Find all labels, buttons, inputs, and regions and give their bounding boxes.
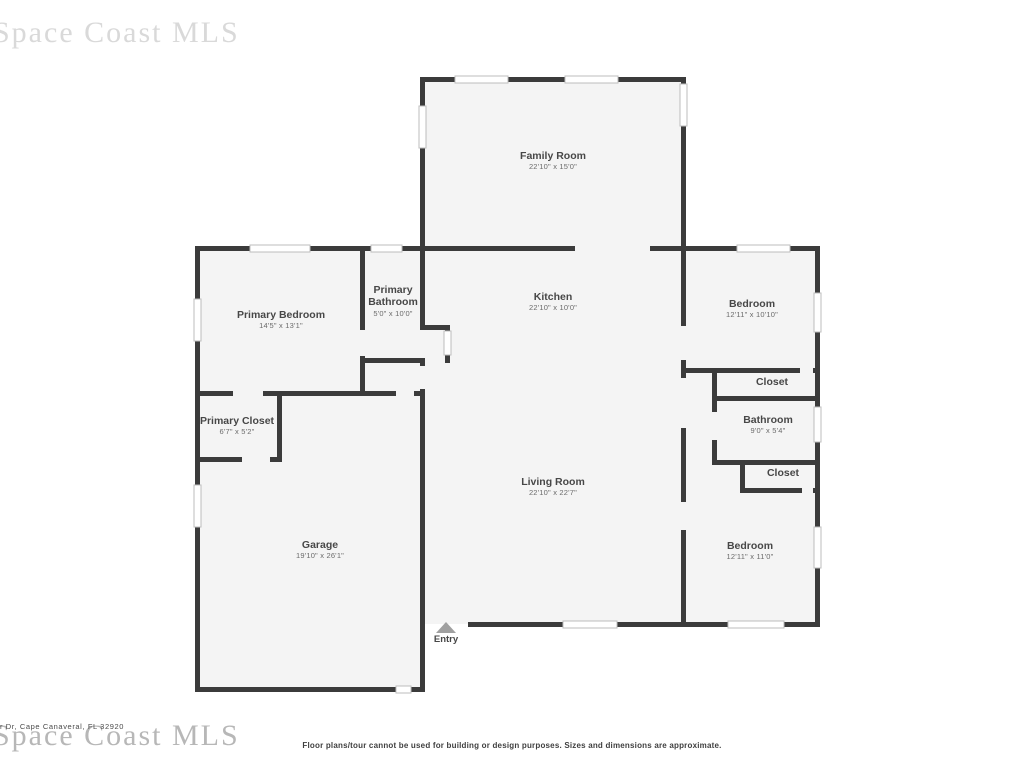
room-label-primary-bathroom: Primary Bathroom 5'0" x 10'0": [360, 284, 426, 319]
room-name: Primary Closet: [200, 415, 274, 427]
room-dims: 5'0" x 10'0": [360, 309, 426, 319]
room-label-kitchen: Kitchen 22'10" x 10'0": [529, 291, 577, 313]
entry-label: Entry: [434, 634, 458, 645]
room-label-closet-2: Closet: [767, 467, 799, 479]
room-name: Family Room: [520, 150, 586, 162]
property-address: r Dr, Cape Canaveral, FL 32920: [0, 722, 124, 731]
room-dims: 12'11" x 11'0": [727, 552, 774, 562]
room-dims: 22'10" x 15'0": [520, 162, 586, 172]
room-dims: 6'7" x 5'2": [200, 427, 274, 437]
room-label-bedroom-1: Bedroom 12'11" x 10'10": [726, 298, 778, 320]
room-label-closet-1: Closet: [756, 376, 788, 388]
room-dims: 12'11" x 10'10": [726, 310, 778, 320]
room-name: Garage: [296, 539, 344, 551]
room-name: Primary Bathroom: [360, 284, 426, 309]
room-dims: 22'10" x 22'7": [521, 488, 585, 498]
floor-plan-page: Space Coast MLS: [0, 0, 1024, 768]
room-name: Bedroom: [726, 298, 778, 310]
room-name: Primary Bedroom: [237, 309, 325, 321]
room-dims: 14'5" x 13'1": [237, 321, 325, 331]
room-name: Closet: [767, 467, 799, 479]
room-name: Living Room: [521, 476, 585, 488]
room-label-garage: Garage 19'10" x 26'1": [296, 539, 344, 561]
room-name: Kitchen: [529, 291, 577, 303]
room-label-primary-bedroom: Primary Bedroom 14'5" x 13'1": [237, 309, 325, 331]
room-dims: 19'10" x 26'1": [296, 551, 344, 561]
room-name: Bedroom: [727, 540, 774, 552]
room-label-primary-closet: Primary Closet 6'7" x 5'2": [200, 415, 274, 437]
room-label-bathroom: Bathroom 9'0" x 5'4": [743, 414, 793, 436]
room-label-family-room: Family Room 22'10" x 15'0": [520, 150, 586, 172]
disclaimer-text: Floor plans/tour cannot be used for buil…: [0, 741, 1024, 750]
room-dims: 22'10" x 10'0": [529, 303, 577, 313]
room-dims: 9'0" x 5'4": [743, 426, 793, 436]
room-label-living-room: Living Room 22'10" x 22'7": [521, 476, 585, 498]
room-fills: [197, 79, 818, 689]
floor-plan-drawing: [0, 0, 1024, 768]
room-name: Bathroom: [743, 414, 793, 426]
room-name: Closet: [756, 376, 788, 388]
room-label-bedroom-2: Bedroom 12'11" x 11'0": [727, 540, 774, 562]
